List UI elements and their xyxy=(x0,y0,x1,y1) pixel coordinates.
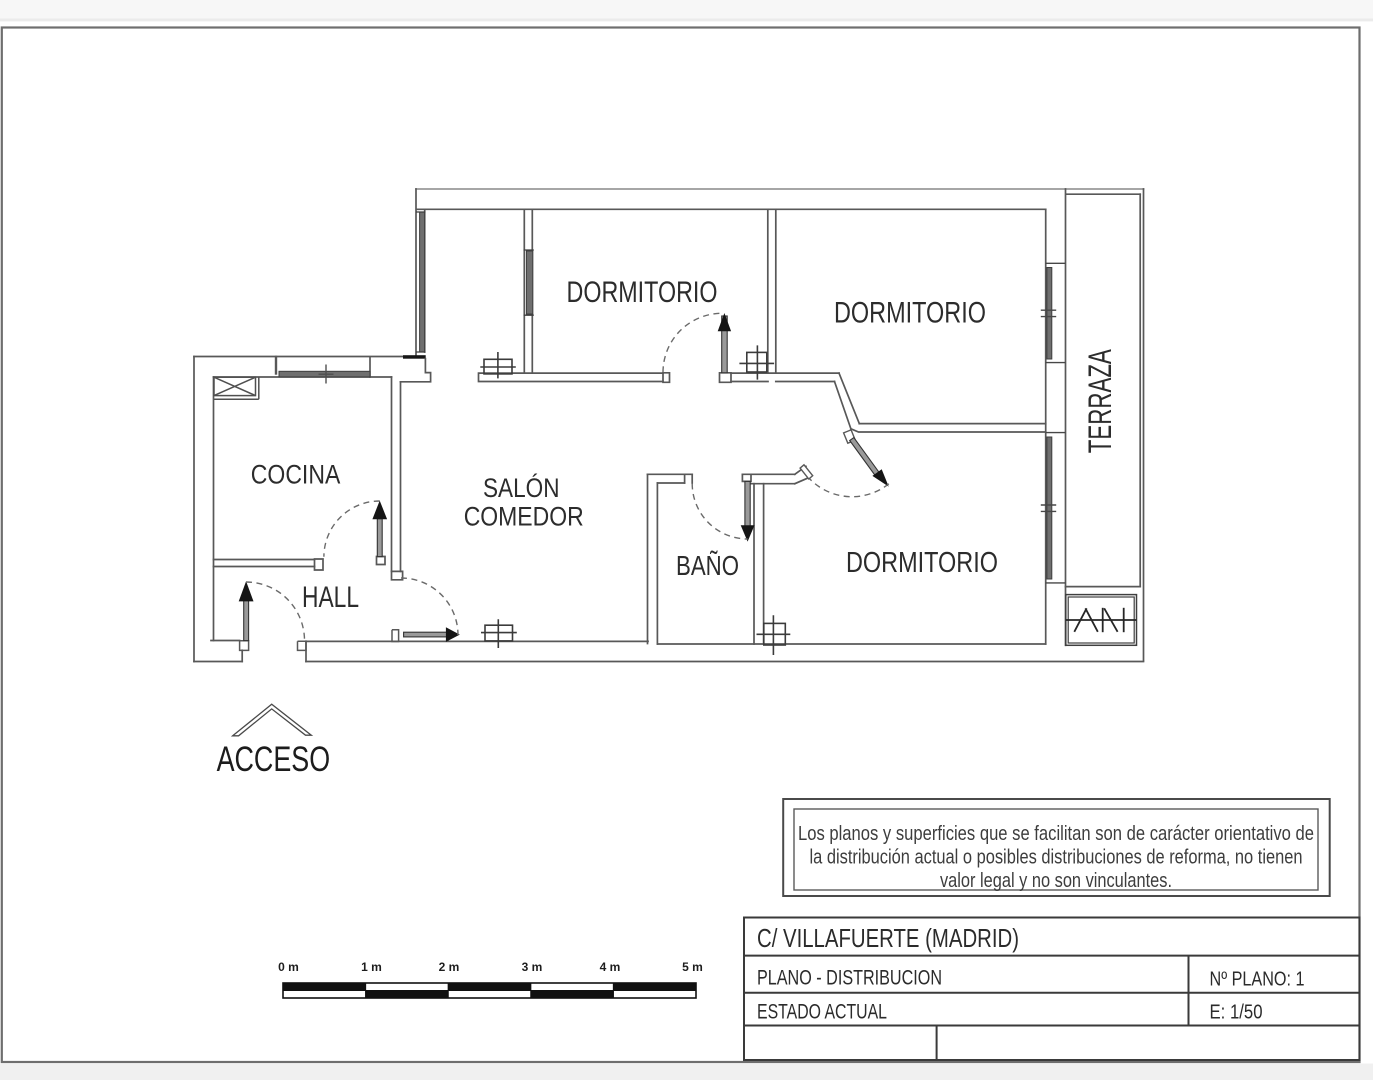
svg-text:4 m: 4 m xyxy=(600,960,621,974)
svg-text:Nº PLANO: 1: Nº PLANO: 1 xyxy=(1210,969,1305,991)
svg-text:C/ VILLAFUERTE (MADRID): C/ VILLAFUERTE (MADRID) xyxy=(757,925,1019,953)
svg-text:BAÑO: BAÑO xyxy=(676,550,739,581)
svg-text:DORMITORIO: DORMITORIO xyxy=(567,276,718,309)
svg-text:TERRAZA: TERRAZA xyxy=(1082,349,1118,453)
svg-text:ACCESO: ACCESO xyxy=(217,740,331,779)
svg-text:la distribución actual o posib: la distribución actual o posibles distri… xyxy=(810,847,1303,869)
svg-text:DORMITORIO: DORMITORIO xyxy=(846,547,998,579)
svg-text:3 m: 3 m xyxy=(522,960,543,974)
svg-text:COMEDOR: COMEDOR xyxy=(464,502,584,532)
svg-text:DORMITORIO: DORMITORIO xyxy=(834,297,986,330)
svg-text:HALL: HALL xyxy=(302,581,359,614)
svg-text:Los planos y superficies que s: Los planos y superficies que se facilita… xyxy=(798,823,1314,845)
svg-text:1 m: 1 m xyxy=(361,960,382,974)
svg-text:E: 1/50: E: 1/50 xyxy=(1210,1002,1263,1024)
svg-text:COCINA: COCINA xyxy=(251,460,340,490)
svg-text:2 m: 2 m xyxy=(439,960,460,974)
svg-text:5 m: 5 m xyxy=(682,960,703,974)
svg-text:valor legal y no son vinculant: valor legal y no son vinculantes. xyxy=(940,870,1172,892)
svg-text:0 m: 0 m xyxy=(278,960,299,974)
svg-text:PLANO - DISTRIBUCION: PLANO - DISTRIBUCION xyxy=(757,967,942,990)
svg-text:ESTADO ACTUAL: ESTADO ACTUAL xyxy=(757,1001,887,1024)
svg-text:SALÓN: SALÓN xyxy=(483,472,560,503)
